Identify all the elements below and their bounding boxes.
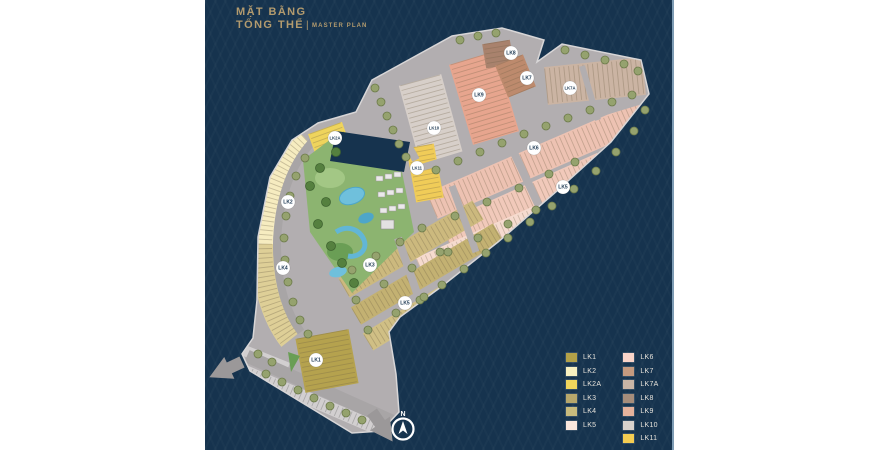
tree-icon [476,148,484,156]
title-subtitle: MASTER PLAN [312,23,367,29]
tree-icon [392,309,400,317]
tree-icon [268,358,276,366]
block-label: LK2 [281,195,295,209]
block-label-text: LK2A [330,136,341,141]
legend-label: LK7A [640,381,658,388]
legend-item: LK10 [623,419,658,433]
legend-swatch-LK10 [623,421,634,430]
tree-icon [474,32,482,40]
masterplan-image: LK8LK7LK7ALK9LK10LK2ALK6LK11LK5LK2LK3LK4… [0,0,880,450]
tree-icon [592,167,600,175]
park-tree-icon [306,182,315,191]
tree-icon [438,281,446,289]
road-continues-arrow-icon [204,351,247,388]
legend-swatch-LK4 [566,407,577,416]
tree-icon [278,378,286,386]
block-label: LK10 [427,121,441,135]
tree-icon [630,127,638,135]
park-tree-icon [322,198,331,207]
legend-swatch-LK3 [566,394,577,403]
tree-icon [548,202,556,210]
tree-icon [542,122,550,130]
tree-icon [444,248,452,256]
tree-icon [460,265,468,273]
block-label-text: LK9 [474,93,484,99]
legend-label: LK11 [640,435,657,442]
parking-structure [378,192,385,197]
block-label-text: LK11 [412,166,423,171]
block-label-text: LK3 [365,263,375,269]
legend-label: LK8 [640,395,653,402]
tree-icon [612,148,620,156]
parking-structure [376,176,383,181]
tree-icon [634,67,642,75]
legend-label: LK5 [583,422,596,429]
legend-item: LK11 [623,432,658,446]
tree-icon [628,91,636,99]
parking-structure [394,172,401,177]
legend-item: LK4 [566,405,601,419]
tree-icon [304,330,312,338]
block-label: LK5 [556,180,570,194]
legend-item: LK9 [623,405,658,419]
legend-label: LK9 [640,408,653,415]
block-label: LK1 [309,353,323,367]
parking-structure [385,174,392,179]
tree-icon [532,206,540,214]
tree-icon [358,416,366,424]
tree-icon [408,264,416,272]
block-label-text: LK10 [429,126,440,131]
legend-column-1: LK1LK2LK2ALK3LK4LK5 [566,351,601,446]
tree-icon [456,36,464,44]
tree-icon [371,84,379,92]
tree-icon [432,166,440,174]
title-line2-text: TỔNG THỂ [236,19,304,31]
tree-icon [482,249,490,257]
parking-structure [380,208,387,213]
tree-icon [294,386,302,394]
block-label-text: LK6 [529,146,539,152]
tree-icon [564,114,572,122]
legend-swatch-LK5 [566,421,577,430]
block-label-text: LK5 [400,301,410,307]
block-label: LK2A [328,131,342,145]
tree-icon [601,56,609,64]
block-band-LK8 [496,42,500,66]
clubhouse [381,220,394,229]
tree-icon [364,326,372,334]
legend-label: LK10 [640,422,658,429]
tree-icon [545,170,553,178]
tree-icon [515,184,523,192]
compass-needle [399,421,408,434]
tree-icon [284,278,292,286]
tree-icon [310,394,318,402]
tree-icon [483,198,491,206]
tree-icon [570,185,578,193]
site-plan-map: LK8LK7LK7ALK9LK10LK2ALK6LK11LK5LK2LK3LK4… [0,0,880,450]
legend-swatch-LK7 [623,367,634,376]
tree-icon [326,402,334,410]
parking-structure [387,190,394,195]
tree-icon [608,98,616,106]
block-label-text: LK1 [311,358,321,364]
tree-icon [380,280,388,288]
tree-icon [289,298,297,306]
legend-swatch-LK9 [623,407,634,416]
block-label: LK3 [363,258,377,272]
tree-icon [504,220,512,228]
title-line1: MẶT BẰNG [236,6,367,19]
legend-item: LK7A [623,378,658,392]
legend-item: LK5 [566,419,601,433]
tree-icon [474,234,482,242]
park-tree-icon [338,259,347,268]
tree-icon [498,139,506,147]
tree-icon [395,140,403,148]
block-label-text: LK5 [558,185,568,191]
parking-structure [396,188,403,193]
block-label: LK5 [398,296,412,310]
legend-swatch-LK2 [566,367,577,376]
park-tree-icon [327,242,336,251]
tree-icon [492,29,500,37]
legend-item: LK6 [623,351,658,365]
block-label: LK6 [527,141,541,155]
parking-structure [389,206,396,211]
tree-icon [301,154,309,162]
tree-icon [262,370,270,378]
block-label-text: LK7A [565,86,576,91]
legend-column-2: LK6LK7LK7ALK8LK9LK10LK11 [623,351,658,446]
block-label-text: LK8 [506,51,516,57]
tree-icon [581,51,589,59]
legend-item: LK3 [566,392,601,406]
block-label: LK7A [563,81,577,95]
park-tree-icon [350,279,359,288]
block-label: LK4 [276,261,290,275]
block-label: LK7 [520,71,534,85]
tree-icon [526,218,534,226]
park-tree-icon [316,164,325,173]
tree-icon [282,212,290,220]
tree-icon [296,316,304,324]
block-band-LK1 [322,334,332,388]
legend-swatch-LK8 [623,394,634,403]
legend-label: LK1 [583,354,596,361]
tree-icon [586,106,594,114]
legend-item: LK8 [623,392,658,406]
park-tree-icon [332,148,341,157]
block-label-text: LK4 [278,266,288,272]
tree-icon [342,409,350,417]
tree-icon [620,60,628,68]
legend-label: LK3 [583,395,596,402]
legend-label: LK2 [583,368,596,375]
block-label-text: LK7 [522,76,532,82]
tree-icon [292,172,300,180]
tree-icon [436,248,444,256]
tree-icon [571,158,579,166]
legend-item: LK2 [566,365,601,379]
legend-label: LK6 [640,354,653,361]
legend-swatch-LK2A [566,380,577,389]
tree-icon [561,46,569,54]
legend-label: LK7 [640,368,653,375]
tree-icon [504,234,512,242]
legend-swatch-LK7A [623,380,634,389]
legend-item: LK1 [566,351,601,365]
title-separator: | [306,20,310,31]
tree-icon [352,296,360,304]
block-label: LK9 [472,88,486,102]
tree-icon [454,157,462,165]
block-label: LK11 [410,161,424,175]
legend-item: LK7 [623,365,658,379]
park-tree-icon [314,220,323,229]
legend-swatch-LK6 [623,353,634,362]
tree-icon [389,126,397,134]
tree-icon [451,212,459,220]
compass-north-label: N [400,411,405,418]
tree-icon [520,130,528,138]
block-label: LK8 [504,46,518,60]
tree-icon [396,238,404,246]
title-line2: TỔNG THỂ|MASTER PLAN [236,19,367,32]
tree-icon [280,234,288,242]
tree-icon [418,224,426,232]
legend-item: LK2A [566,378,601,392]
legend-swatch-LK11 [623,434,634,443]
parking-structure [398,204,405,209]
legend-label: LK4 [583,408,596,415]
legend-label: LK2A [583,381,601,388]
tree-icon [383,112,391,120]
tree-icon [402,153,410,161]
tree-icon [254,350,262,358]
page-title: MẶT BẰNG TỔNG THỂ|MASTER PLAN [236,6,367,31]
legend-swatch-LK1 [566,353,577,362]
tree-icon [420,293,428,301]
tree-icon [641,106,649,114]
tree-icon [377,98,385,106]
tree-icon [348,266,356,274]
legend: LK1LK2LK2ALK3LK4LK5 LK6LK7LK7ALK8LK9LK10… [566,351,659,446]
block-label-text: LK2 [283,200,293,206]
